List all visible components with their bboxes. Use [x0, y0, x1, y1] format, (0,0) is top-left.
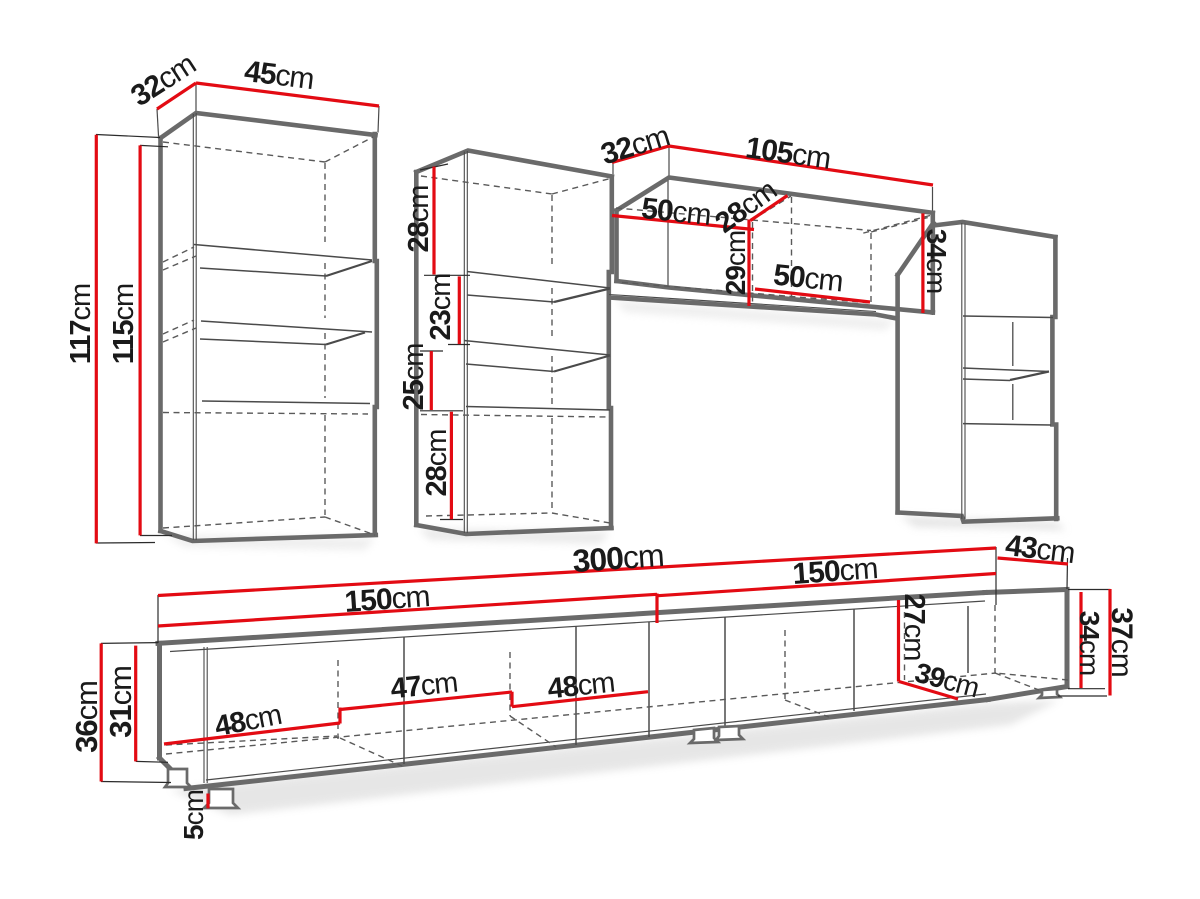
- svg-text:34cm: 34cm: [922, 229, 953, 293]
- svg-text:23cm: 23cm: [425, 274, 457, 341]
- svg-text:28cm: 28cm: [403, 186, 435, 253]
- svg-text:34cm: 34cm: [1075, 611, 1106, 675]
- svg-text:115cm: 115cm: [108, 284, 140, 364]
- svg-text:27cm: 27cm: [898, 594, 930, 661]
- svg-text:117cm: 117cm: [65, 284, 97, 364]
- svg-text:25cm: 25cm: [398, 344, 430, 411]
- svg-text:150cm: 150cm: [343, 580, 430, 619]
- svg-text:300cm: 300cm: [571, 537, 664, 579]
- svg-text:36cm: 36cm: [69, 681, 104, 753]
- svg-text:150cm: 150cm: [791, 552, 878, 591]
- svg-text:31cm: 31cm: [103, 666, 138, 738]
- svg-text:28cm: 28cm: [421, 430, 453, 497]
- svg-text:5cm: 5cm: [178, 790, 209, 840]
- svg-text:29cm: 29cm: [720, 231, 751, 295]
- svg-text:37cm: 37cm: [1106, 607, 1139, 676]
